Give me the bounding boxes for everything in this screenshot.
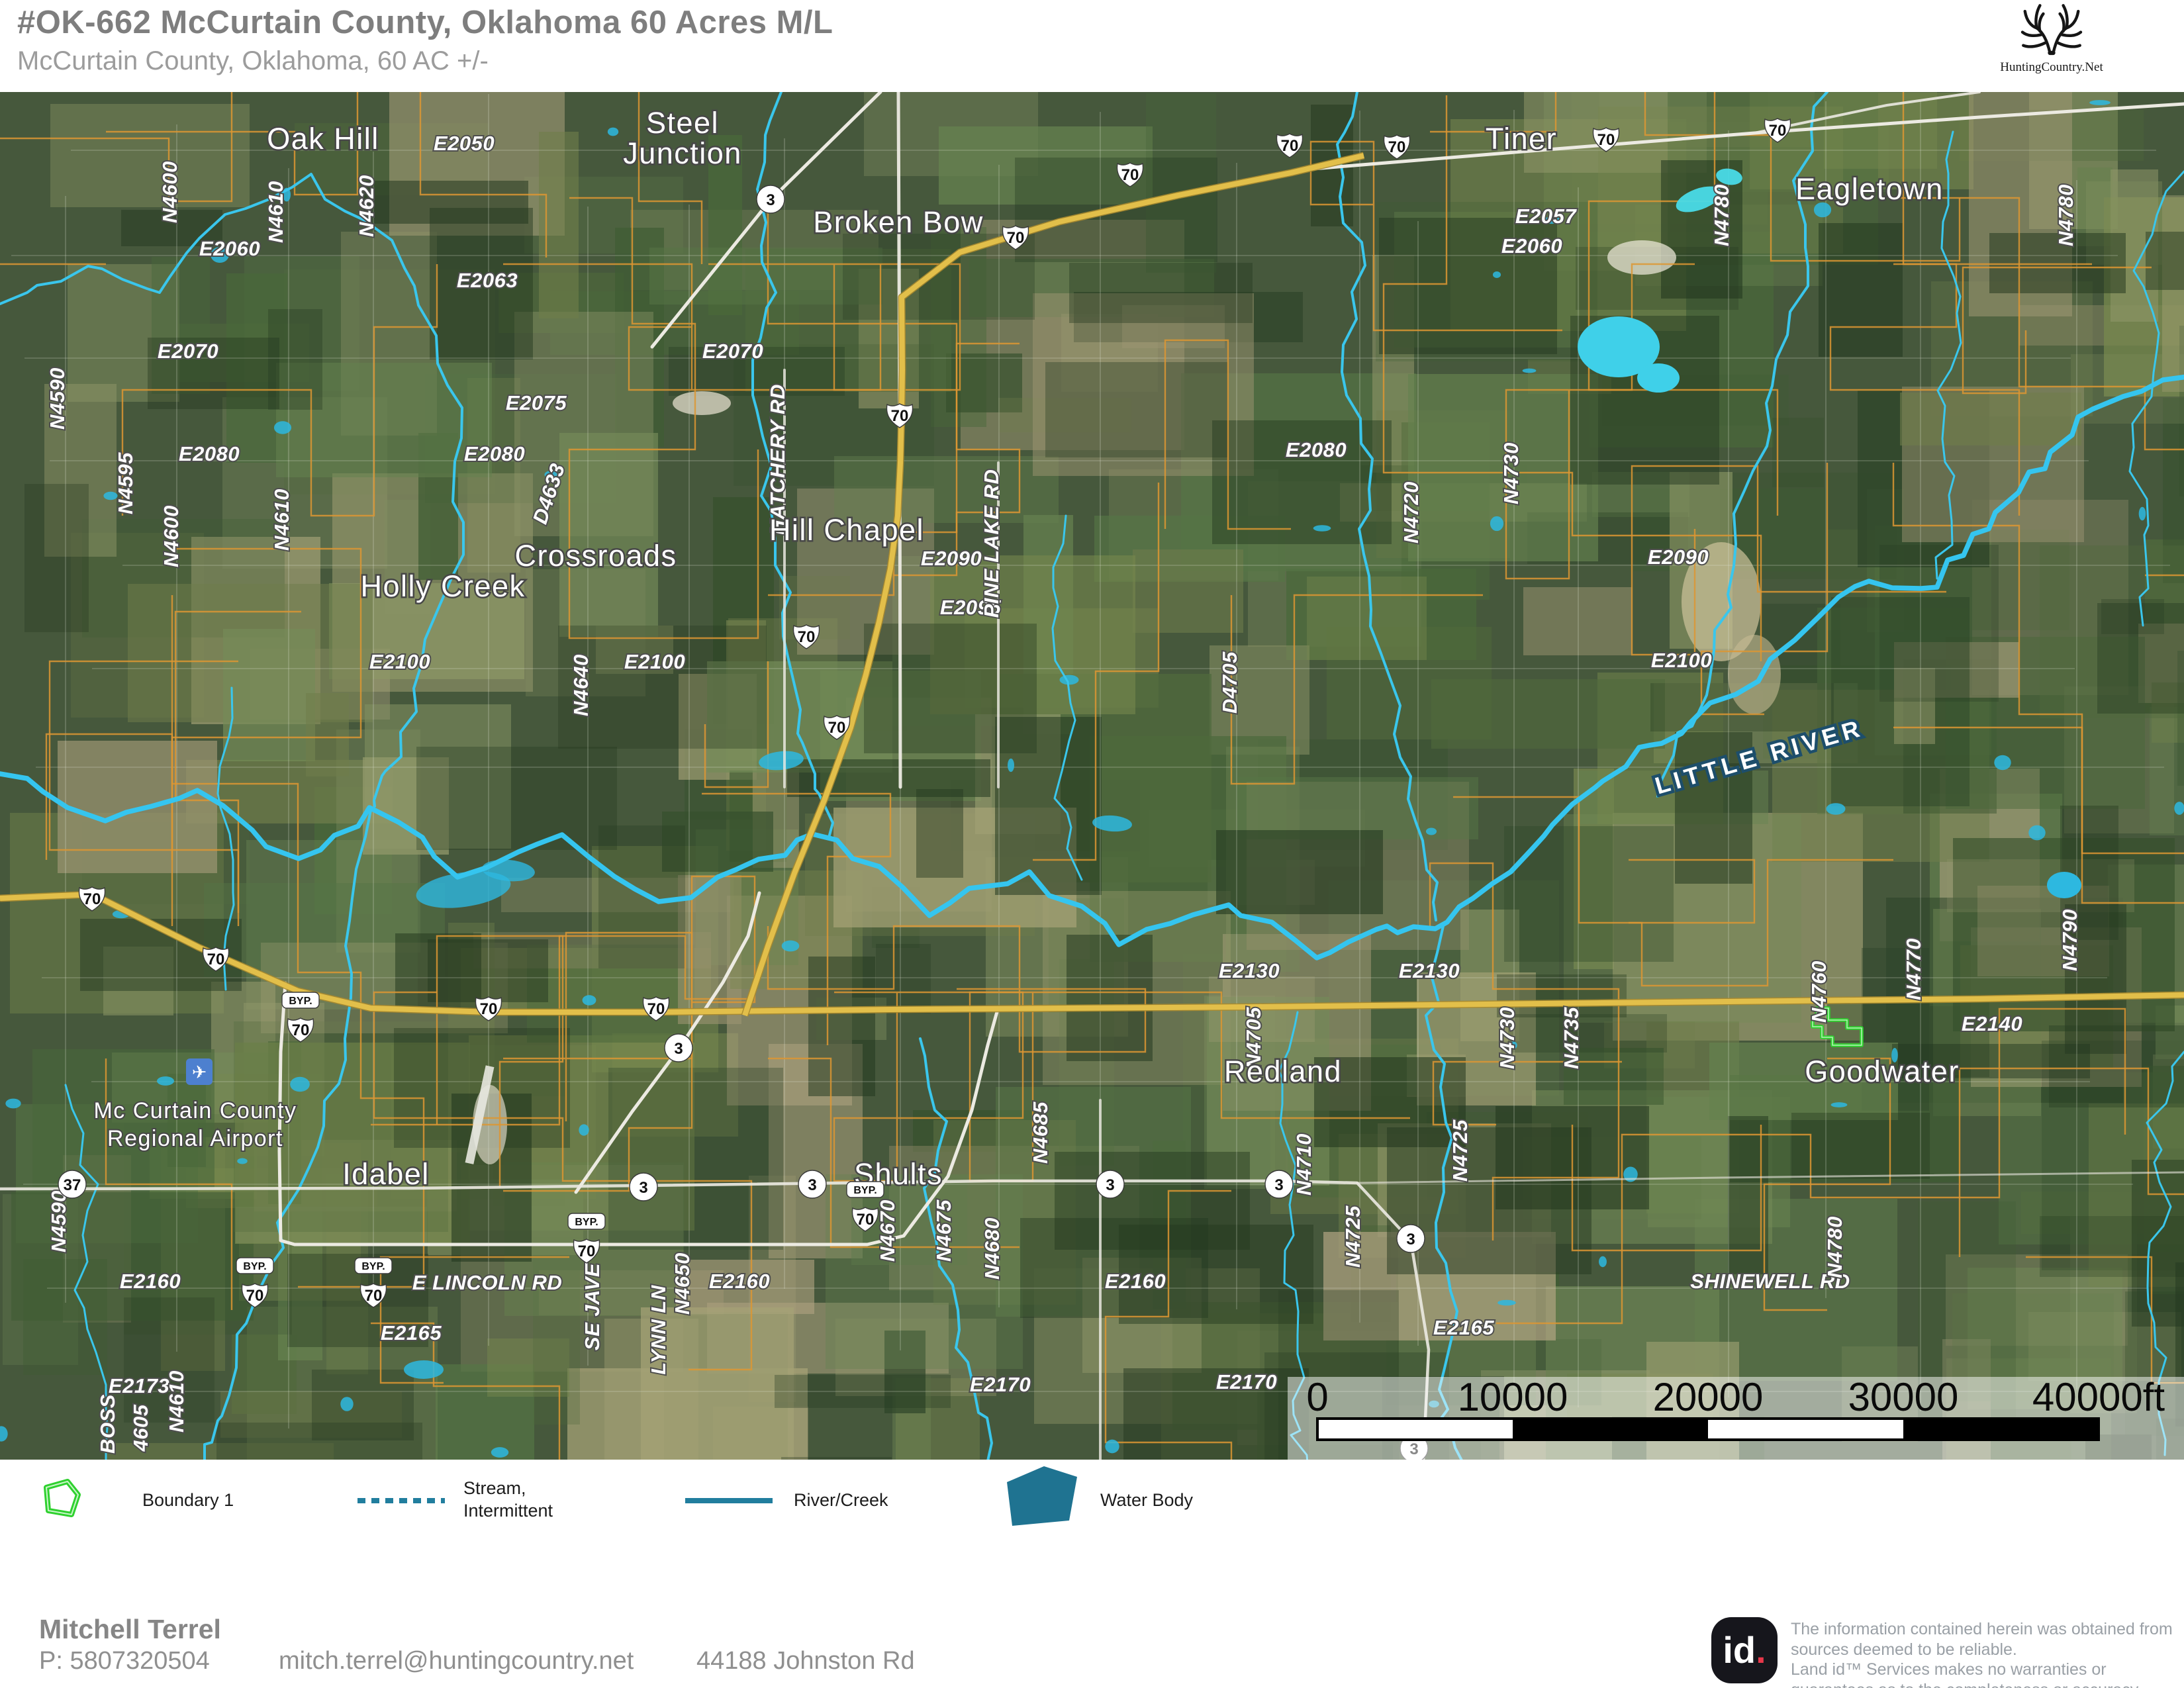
byp-badge: BYP. [853, 1185, 877, 1196]
road-label: E2080 [179, 442, 240, 465]
legend-waterbody-label: Water Body [1100, 1490, 1193, 1511]
town-label: Broken Bow [813, 205, 984, 239]
road-label: E2173 [109, 1374, 169, 1397]
antlers-icon [1995, 1, 2108, 60]
us-70-shield: 70 [365, 1287, 383, 1305]
byp-badge: BYP. [361, 1261, 385, 1272]
road-label: D4705 [1218, 651, 1241, 714]
town-label: Redland [1224, 1055, 1342, 1088]
town-label: Junction [623, 136, 742, 170]
us-70-shield: 70 [1281, 137, 1299, 155]
airport-label: Mc Curtain County [93, 1098, 297, 1123]
agent-phone: P: 5807320504 [39, 1647, 210, 1675]
us-70-shield: 70 [1121, 166, 1139, 184]
town-label: Hill Chapel [769, 513, 924, 547]
scale-label: 20000 [1653, 1375, 1764, 1419]
town-label: Tiner [1486, 122, 1557, 156]
road-label: HATCHERY RD [766, 384, 789, 535]
town-label: Holly Creek [360, 569, 525, 603]
town-label: Eagletown [1795, 172, 1944, 206]
road-label: N4730 [1499, 442, 1523, 504]
scale-label: 40000ft [2032, 1375, 2165, 1419]
road-label: E2090 [921, 547, 982, 570]
town-label: Steel [646, 106, 719, 140]
road-label: N4790 [2058, 909, 2081, 971]
us-70-shield: 70 [246, 1287, 264, 1305]
road-label: E2057 [1515, 205, 1577, 228]
highway-circle-shield: 3 [674, 1040, 683, 1058]
highway-circle-shield: 37 [64, 1176, 81, 1194]
us-70-shield: 70 [857, 1211, 875, 1229]
highway-circle-shield: 3 [1406, 1231, 1415, 1248]
us-70-shield: 70 [647, 1000, 665, 1018]
us-70-shield: 70 [578, 1243, 596, 1260]
brand-logo: HuntingCountry.Net [1992, 1, 2111, 75]
road-label: N4685 [1029, 1102, 1052, 1164]
us-70-shield: 70 [1597, 131, 1615, 149]
scale-label: 30000 [1848, 1375, 1959, 1419]
road-label: E2050 [434, 132, 495, 155]
us-70-shield: 70 [207, 951, 225, 968]
road-label: 4605 [129, 1404, 152, 1452]
road-label: N4780 [1823, 1216, 1846, 1278]
road-label: N4610 [165, 1370, 188, 1432]
legend-stream-label-1: Stream, [463, 1478, 526, 1499]
disclaimer-text: The information contained herein was obt… [1791, 1619, 2184, 1688]
town-label: Crossroads [514, 539, 677, 573]
road-label: E2165 [381, 1321, 442, 1344]
road-label: E2075 [506, 391, 567, 414]
road-label: E2100 [624, 650, 685, 673]
property-map: E2050E2060E2063E2057E2060E2070E2070E2075… [0, 92, 2184, 1460]
agent-name: Mitchell Terrel [39, 1614, 221, 1645]
road-label: N4610 [264, 181, 287, 243]
us-70-shield: 70 [292, 1021, 310, 1039]
legend: Boundary 1 Stream, Intermittent River/Cr… [0, 1460, 2184, 1602]
road-label: N4780 [2054, 184, 2077, 246]
road-label: E2170 [970, 1373, 1031, 1396]
road-label: N4610 [270, 489, 293, 551]
road-label: N4650 [671, 1252, 694, 1315]
us-70-shield: 70 [1007, 229, 1025, 247]
road-label: N4710 [1292, 1133, 1315, 1196]
town-label: Idabel [342, 1157, 430, 1191]
road-label: N4725 [1341, 1205, 1364, 1268]
highway-circle-shield: 3 [1106, 1176, 1114, 1194]
road-label: N4720 [1400, 481, 1423, 543]
waterbody-legend-icon [1003, 1465, 1082, 1538]
road-label: SE JAVE [581, 1262, 604, 1350]
road-label: N4590 [46, 367, 69, 430]
us-70-shield: 70 [1769, 122, 1787, 140]
road-label: N4675 [932, 1199, 955, 1262]
us-70-shield: 70 [480, 1000, 498, 1018]
road-label: E2070 [158, 340, 218, 363]
highway-circle-shield: 3 [639, 1179, 647, 1197]
road-label: BOSS [96, 1394, 119, 1454]
agent-address: 44188 Johnston Rd [696, 1647, 915, 1675]
road-label: N4640 [569, 654, 593, 716]
airport-label: Regional Airport [107, 1126, 283, 1151]
road-label: N4620 [355, 175, 378, 237]
agent-email[interactable]: mitch.terrel@huntingcountry.net [279, 1647, 634, 1675]
page-title: #OK-662 McCurtain County, Oklahoma 60 Ac… [17, 4, 833, 41]
road-label: N4780 [1710, 184, 1733, 246]
us-70-shield: 70 [891, 407, 909, 425]
river-legend-icon [683, 1494, 775, 1507]
road-label: N4730 [1496, 1007, 1519, 1069]
byp-badge: BYP. [243, 1261, 266, 1272]
scale-label: 0 [1306, 1375, 1328, 1419]
road-label: E2063 [457, 269, 518, 292]
brand-name: HuntingCountry.Net [1992, 60, 2111, 75]
us-70-shield: 70 [828, 719, 846, 737]
town-label: Oak Hill [267, 122, 379, 156]
road-label: E2140 [1962, 1012, 2022, 1035]
byp-badge: BYP. [289, 996, 312, 1007]
page: #OK-662 McCurtain County, Oklahoma 60 Ac… [0, 0, 2184, 1688]
road-label: N4600 [160, 505, 183, 567]
road-label: E2100 [1651, 649, 1712, 672]
legend-boundary-label: Boundary 1 [142, 1490, 234, 1511]
road-label: E2160 [709, 1270, 770, 1293]
road-label: N4760 [1807, 961, 1830, 1023]
scale-label: 10000 [1458, 1375, 1568, 1419]
road-label: E2090 [1648, 545, 1709, 569]
road-label: E2080 [1286, 438, 1347, 461]
road-label: E2130 [1399, 959, 1460, 982]
boundary-legend-icon [40, 1477, 86, 1523]
land-id-logo: id. [1711, 1617, 1778, 1683]
road-label: E2170 [1216, 1370, 1277, 1393]
highway-circle-shield: 3 [808, 1176, 816, 1194]
highway-circle-shield: 3 [766, 191, 775, 209]
map-svg: E2050E2060E2063E2057E2060E2070E2070E2075… [0, 92, 2184, 1460]
road-label: E2160 [1105, 1270, 1166, 1293]
road-label: N4735 [1560, 1007, 1583, 1069]
road-label: LYNN LN [647, 1285, 670, 1375]
us-70-shield: 70 [83, 890, 101, 908]
road-label: E2080 [464, 442, 525, 465]
stream-legend-icon [355, 1494, 448, 1507]
byp-badge: BYP. [575, 1217, 598, 1228]
road-label: E2160 [120, 1270, 181, 1293]
road-label: N4600 [158, 161, 181, 223]
road-label: N4680 [980, 1217, 1004, 1280]
us-70-shield: 70 [1388, 138, 1406, 156]
road-label: E LINCOLN RD [412, 1271, 562, 1294]
road-label: N4590 [47, 1190, 70, 1252]
road-label: N4595 [114, 452, 137, 514]
us-70-shield: 70 [798, 628, 816, 646]
road-label: E2060 [1501, 234, 1562, 258]
legend-stream-label-2: Intermittent [463, 1501, 553, 1521]
road-label: E2070 [702, 340, 763, 363]
airport-icon: ✈ [192, 1062, 207, 1082]
road-label: PINE LAKE RD [980, 469, 1003, 618]
highway-circle-shield: 3 [1274, 1176, 1283, 1194]
road-label: E2100 [369, 650, 430, 673]
road-label: E2060 [199, 237, 260, 260]
page-subtitle: McCurtain County, Oklahoma, 60 AC +/- [17, 46, 489, 76]
road-label: N4725 [1448, 1119, 1472, 1182]
town-label: Goodwater [1805, 1055, 1960, 1088]
legend-river-label: River/Creek [794, 1490, 888, 1511]
road-label: E2130 [1219, 959, 1280, 982]
road-label: N4770 [1902, 938, 1925, 1000]
road-label: N4670 [876, 1199, 899, 1262]
road-label: E2165 [1433, 1316, 1494, 1339]
